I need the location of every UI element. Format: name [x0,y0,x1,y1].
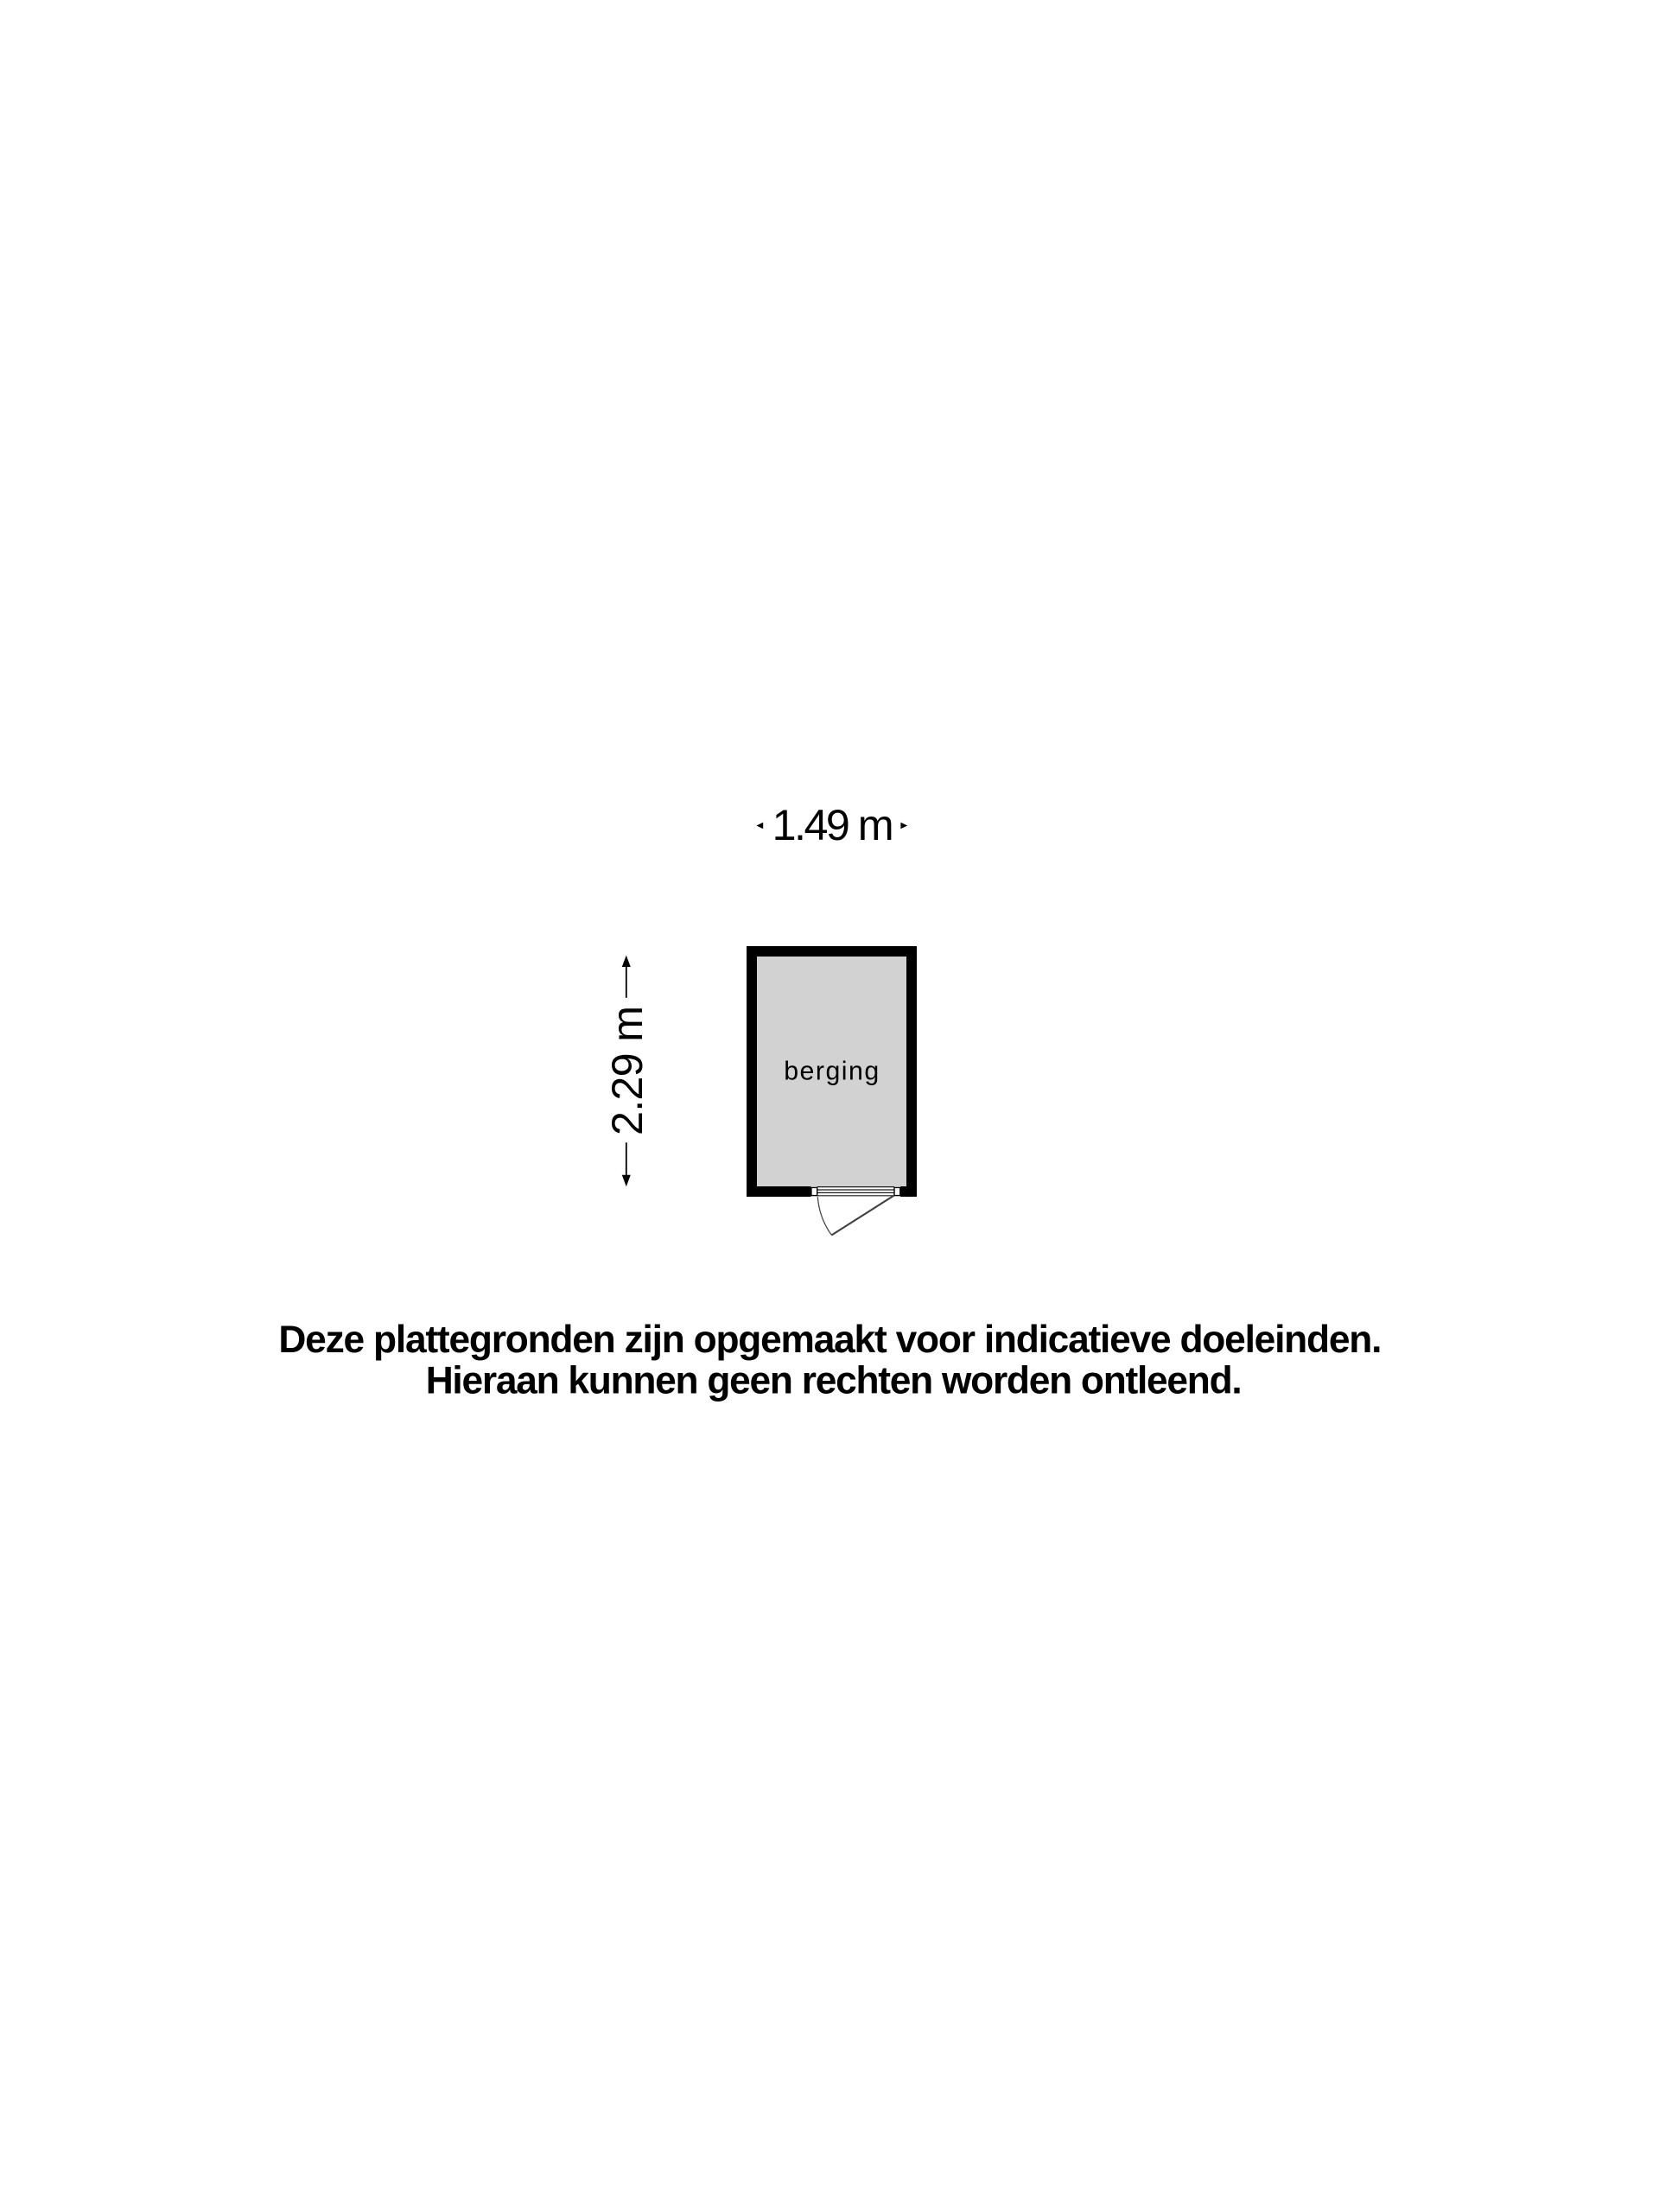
svg-text:1.49 m: 1.49 m [772,800,894,849]
svg-text:2.29 m: 2.29 m [602,1006,652,1135]
svg-text:Hieraan kunnen geen rechten wo: Hieraan kunnen geen rechten worden ontle… [426,1359,1243,1402]
svg-text:berging: berging [784,1058,879,1086]
svg-text:Deze plattegronden zijn opgema: Deze plattegronden zijn opgemaakt voor i… [278,1319,1382,1361]
